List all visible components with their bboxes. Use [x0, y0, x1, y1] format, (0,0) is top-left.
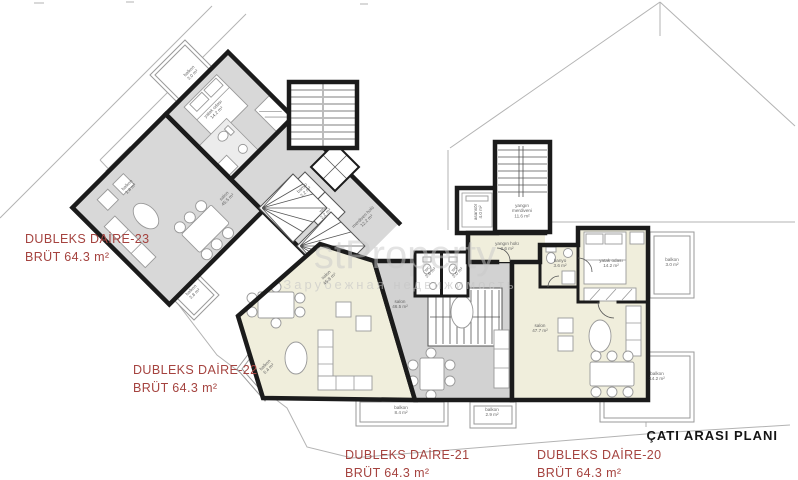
label-apartment-22-name: DUBLEKS DAİRE-22 [133, 363, 258, 377]
label-apartment-20-area: BRÜT 64.3 m² [537, 466, 621, 480]
label-apartment-21-area: BRÜT 64.3 m² [345, 466, 429, 480]
label-apartment-21-name: DUBLEKS DAİRE-21 [345, 448, 470, 462]
fire-stair-tower [495, 142, 550, 232]
dining-set-d20 [590, 351, 634, 397]
floor-plan-canvas: stProperty Зарубежная недвижимость balko… [0, 0, 798, 480]
label-apartment-23-area: BRÜT 64.3 m² [25, 250, 109, 264]
watermark: stProperty Зарубежная недвижимость [283, 233, 516, 292]
label-d21-balkon-2: balkon2.9 m² [485, 407, 499, 417]
floor-plan-page: stProperty Зарубежная недвижимость balko… [0, 0, 798, 480]
label-apartment-23-name: DUBLEKS DAİRE-23 [25, 232, 150, 246]
label-elevator: asansör4.0 m² [473, 203, 483, 220]
switchback-stair [289, 82, 357, 148]
label-apartment-20-name: DUBLEKS DAİRE-20 [537, 448, 662, 462]
label-d20-balkon-right: balkon3.0 m² [665, 257, 679, 267]
label-apartment-22-area: BRÜT 64.3 m² [133, 381, 217, 395]
wardrobe-d20 [584, 288, 636, 301]
label-d20-banyo: banyo3.6 m² [553, 258, 566, 268]
watermark-subtitle: Зарубежная недвижимость [283, 277, 516, 292]
label-d21-balkon-1: balkon8.4 m² [394, 405, 408, 415]
label-d20-balkon-bottom: balkon14.2 m² [649, 371, 665, 381]
watermark-brand: stProperty [314, 233, 496, 277]
plan-title: ÇATI ARASI PLANI [646, 428, 778, 443]
